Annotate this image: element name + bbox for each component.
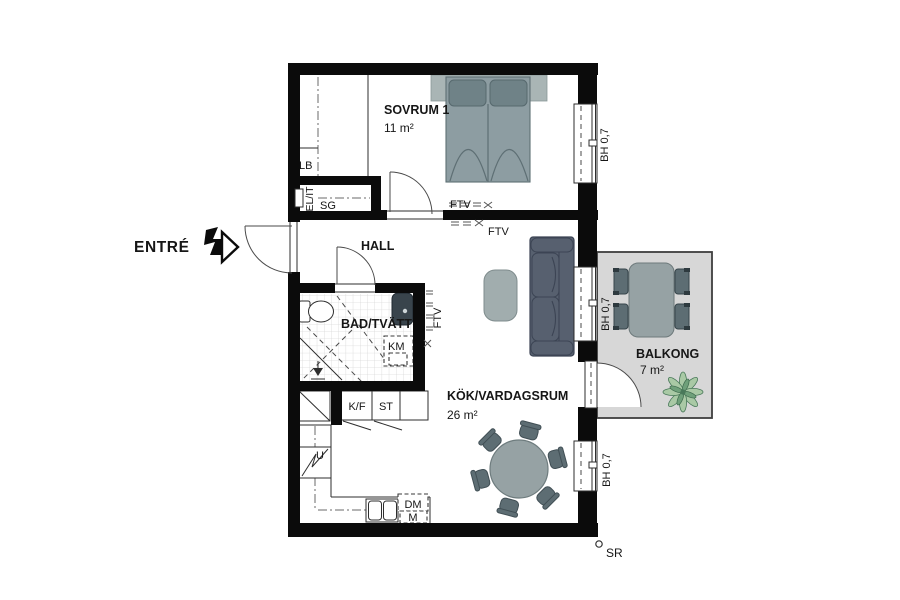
el-it-panel [295,189,303,207]
washing-machine-label: KM [388,341,405,353]
window-height-label: BH 0,7 [601,453,613,487]
oven-label: U [316,450,324,462]
washing-machine-inner [389,353,407,365]
balcony-door [585,361,597,408]
wall-right [578,182,597,268]
kitchen-window [574,441,597,491]
balcony-area-label: 7 m² [640,363,664,377]
entry-label: ENTRÉ [134,239,190,256]
cleaning-cabinet-label: ST [379,401,393,413]
sr-label: SR [606,546,623,560]
sr-symbol [596,541,602,547]
wall-right [578,341,597,362]
wall-right [578,407,597,442]
balcony-table [629,263,674,337]
el-it-label: EL/IT [304,186,316,212]
washbasin-faucet [403,309,407,313]
balcony-label: BALKONG [636,347,699,361]
wall-bathroom-right [413,283,425,391]
hall-label: HALL [361,239,395,253]
window-height-label: BH 0,7 [599,128,611,162]
bed-pillow [490,80,527,106]
kitchen-sink [366,499,398,522]
dining-table [490,440,548,498]
kitchen-living-area-label: 26 m² [447,408,478,422]
living-room-window [574,267,597,341]
bathroom-label: BAD/TVÄTT [341,316,412,331]
lb-label: LB [299,160,312,172]
toilet [299,301,334,322]
floor-plan-svg: BALKONG 7 m² LB [0,0,900,600]
wall-top [288,63,598,75]
hall-closet: EL/IT SG [295,185,371,212]
wall-right [578,63,597,105]
bedroom-label: SOVRUM 1 [384,103,449,117]
wall-closet-top [288,176,381,185]
balcony: BALKONG 7 m² [597,252,712,418]
wall-right [578,490,597,537]
dishwasher-label: DM [404,499,421,511]
potted-plant [663,372,703,412]
sofa [530,237,574,356]
balcony-chair [613,303,628,330]
bed-pillow [449,80,486,106]
coffee-table [484,270,517,321]
fridge-freezer-label: K/F [348,401,365,413]
ftv-label-top: FTV [450,199,471,211]
window-height-label: BH 0,7 [600,297,612,331]
ftv-label-bottom: FTV [488,226,509,238]
kitchen-living-label: KÖK/VARDAGSRUM [447,388,568,403]
ftv-label-side: FTV [432,307,444,328]
microwave-label: M [408,512,417,524]
balcony-chair [613,268,628,295]
balcony-chair [675,268,690,295]
bedroom-window [574,104,597,183]
wall-kitchen-stub [331,391,342,425]
wall-bottom [288,523,598,537]
wall-closet-right [371,176,381,220]
sliding-wardrobe-label: SG [320,200,336,212]
wall-bathroom-top [288,283,335,293]
balcony-chair [675,303,690,330]
floor-plan-page: BALKONG 7 m² LB [0,0,900,600]
wall-bathroom-bottom [288,381,425,391]
tall-cabinet [400,391,428,420]
wall-left-lower [288,272,300,537]
bedroom-area-label: 11 m² [384,121,414,135]
wall-bedroom-divider [443,210,598,220]
